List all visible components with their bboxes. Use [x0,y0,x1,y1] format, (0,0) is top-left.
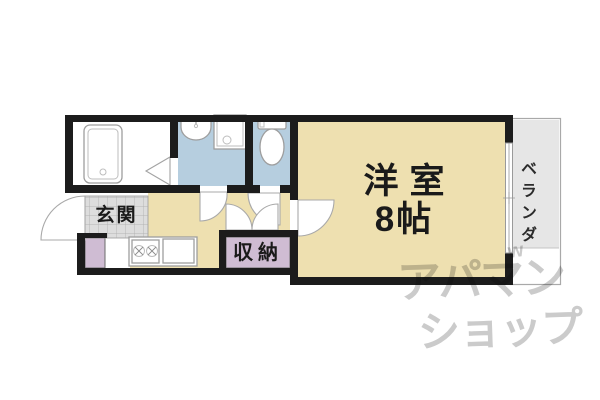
storage-label: 収納 [226,243,290,263]
gas-stove-icon [132,240,159,263]
veranda-label: ベランダ [518,150,534,258]
western-room-size-label: 8帖 [300,202,508,237]
toilet-icon [258,118,286,165]
kitchen-counter [129,237,197,266]
floorplan: 玄関 収納 洋室 8帖 ベランダ アパマン w ショップ [0,0,600,400]
western-room-label: 洋室 [300,164,508,199]
folding-bath-door-icon [146,157,170,185]
bathtub-icon [84,125,122,183]
entrance-label: 玄関 [85,206,148,225]
kitchen-sink-icon [163,239,194,263]
utility-box [85,238,105,268]
floorplan-drawing [0,0,600,400]
